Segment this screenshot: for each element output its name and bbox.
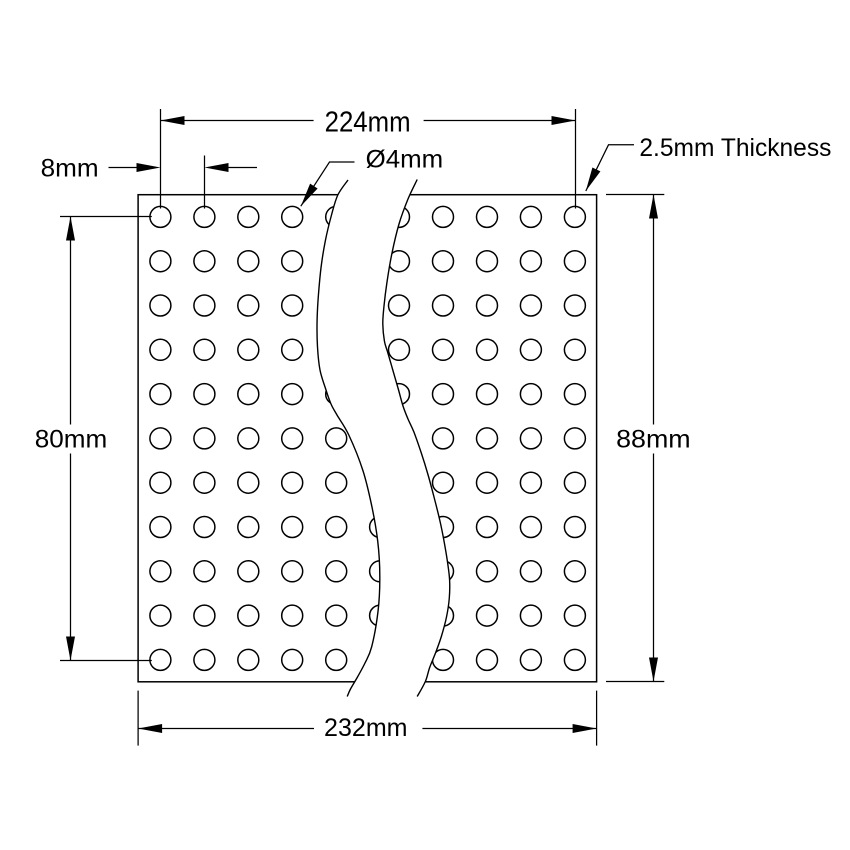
svg-text:224mm: 224mm [325, 106, 411, 138]
svg-text:88mm: 88mm [616, 426, 691, 454]
svg-text:Ø4mm: Ø4mm [366, 145, 444, 173]
svg-text:8mm: 8mm [41, 155, 99, 183]
svg-text:232mm: 232mm [324, 714, 408, 742]
svg-text:80mm: 80mm [35, 426, 108, 454]
svg-text:2.5mm Thickness: 2.5mm Thickness [639, 134, 831, 162]
